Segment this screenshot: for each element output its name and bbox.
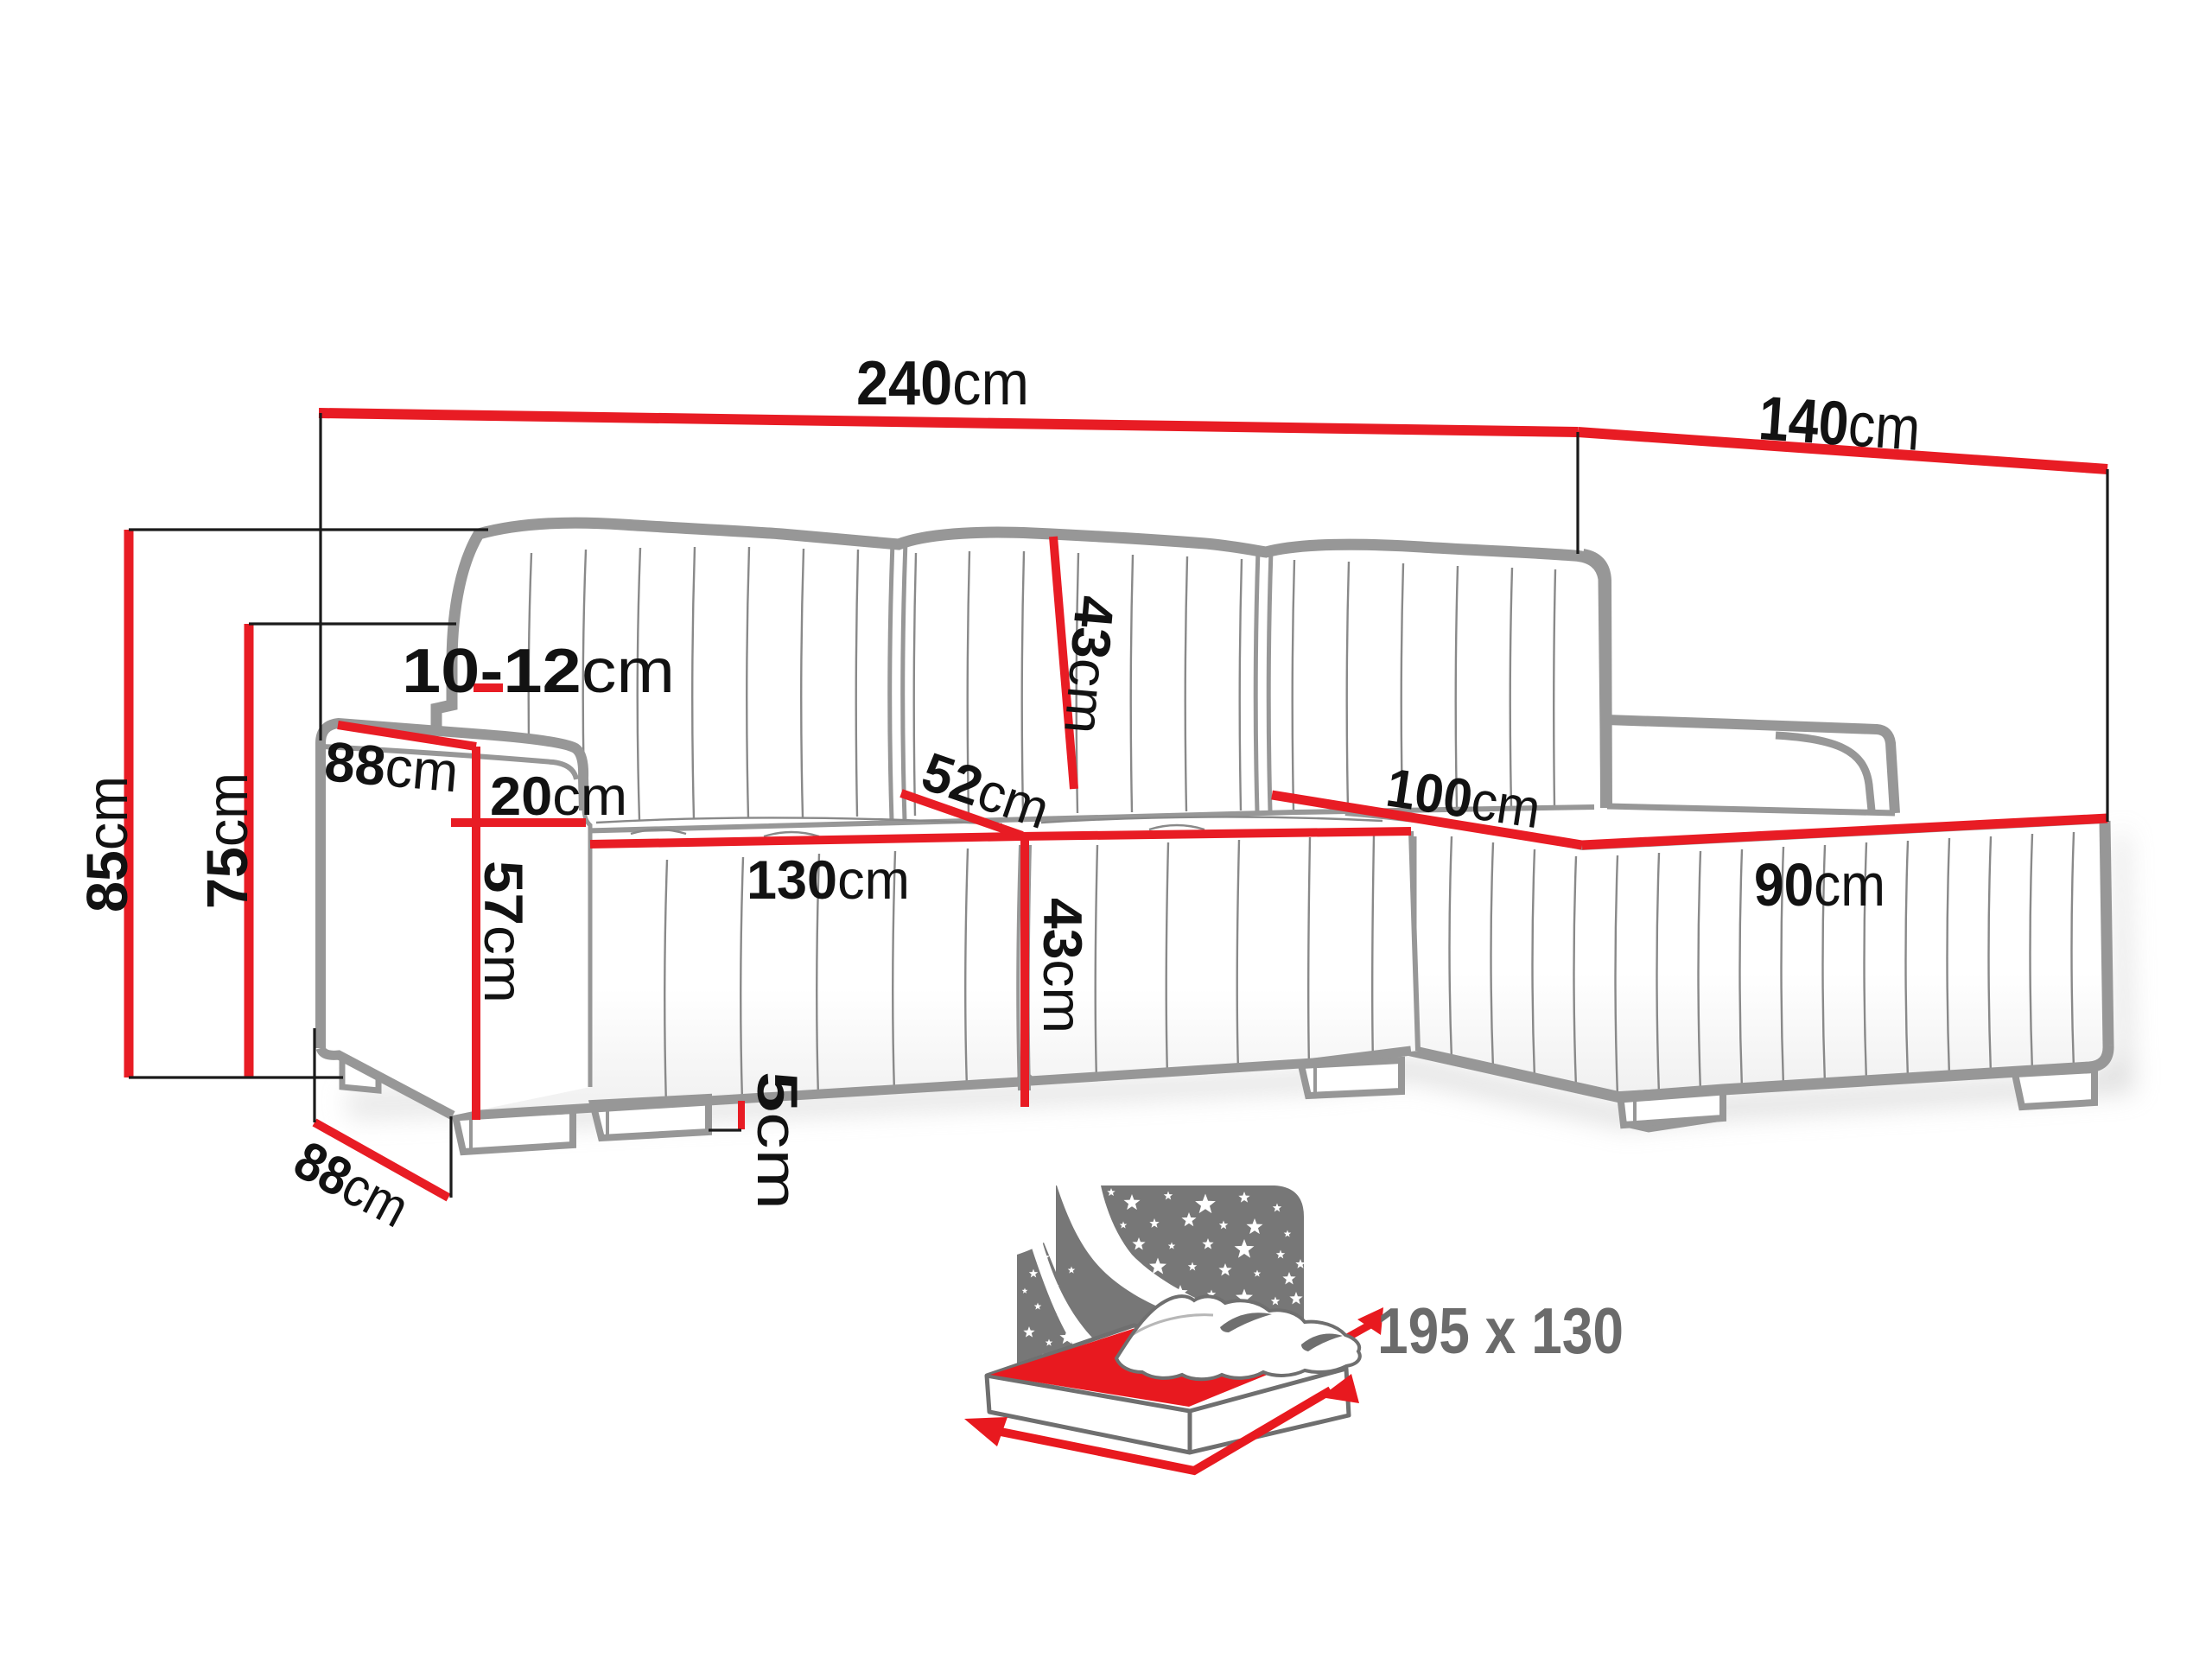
- svg-text:240cm: 240cm: [856, 349, 1029, 418]
- svg-text:90cm: 90cm: [1754, 851, 1885, 918]
- svg-text:43cm: 43cm: [1052, 594, 1125, 736]
- svg-text:130cm: 130cm: [747, 850, 910, 911]
- svg-text:57cm: 57cm: [473, 861, 533, 1003]
- svg-text:20cm: 20cm: [490, 766, 627, 827]
- svg-text:88cm: 88cm: [322, 729, 461, 804]
- svg-text:75cm: 75cm: [195, 772, 260, 909]
- svg-text:5cm: 5cm: [746, 1071, 810, 1210]
- svg-text:43cm: 43cm: [1032, 898, 1092, 1033]
- svg-text:10-12cm: 10-12cm: [402, 637, 675, 706]
- svg-text:85cm: 85cm: [75, 776, 140, 912]
- svg-text:195 x 130: 195 x 130: [1377, 1294, 1624, 1367]
- svg-text:140cm: 140cm: [1757, 384, 1923, 464]
